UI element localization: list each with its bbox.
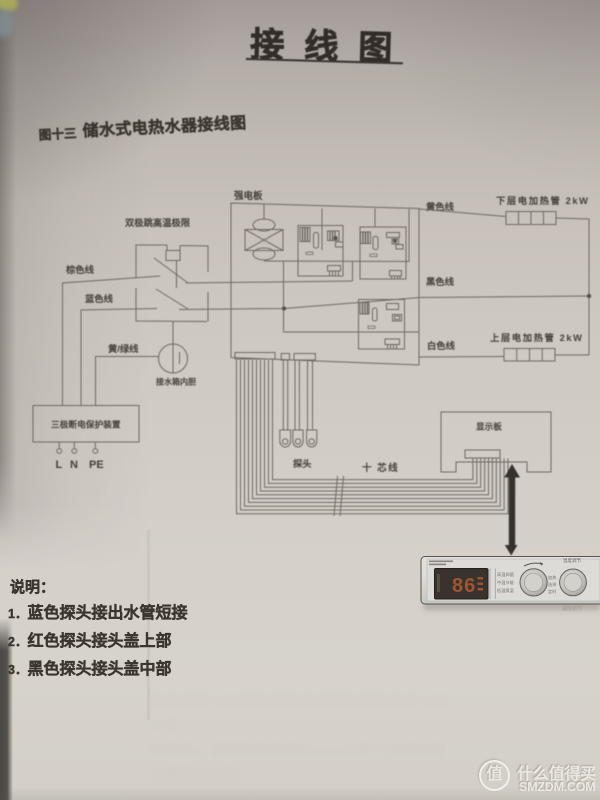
svg-text:定时: 定时 <box>548 588 557 595</box>
svg-text:高温抑菌: 高温抑菌 <box>497 571 514 578</box>
svg-text:选择: 选择 <box>548 581 557 588</box>
svg-text:温度调节: 温度调节 <box>562 605 582 612</box>
svg-text:中温节能: 中温节能 <box>497 579 515 586</box>
svg-text:86: 86 <box>452 575 476 597</box>
svg-text:加热: 加热 <box>548 574 557 581</box>
svg-text:温度调节: 温度调节 <box>563 557 581 564</box>
svg-text:低温保温: 低温保温 <box>497 587 515 594</box>
